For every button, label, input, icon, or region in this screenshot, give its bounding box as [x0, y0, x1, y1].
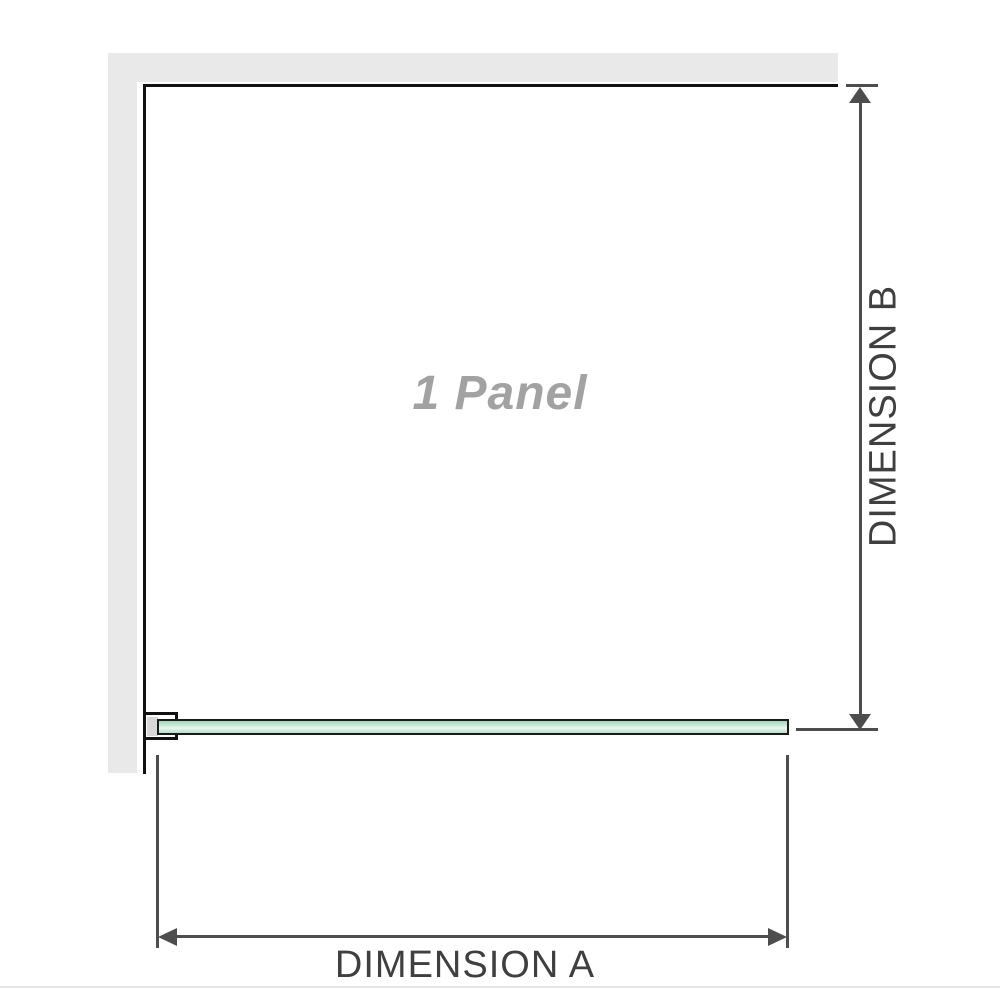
enclosure-left-line: [143, 84, 146, 774]
dimension-a-arrow-right-icon: [768, 928, 787, 946]
dimension-a-extension-left: [156, 755, 159, 948]
dimension-b-label: DIMENSION B: [863, 285, 906, 547]
dimension-b-arrow-up-icon: [849, 87, 871, 103]
bottom-separator-line: [0, 986, 1000, 988]
wall-top-band: [108, 53, 838, 82]
glass-panel: [157, 719, 789, 735]
dimension-a-label: DIMENSION A: [295, 944, 635, 987]
enclosure-top-line: [143, 84, 838, 87]
dimension-a-arrow-left-icon: [158, 928, 177, 946]
dimension-a-extension-right: [786, 755, 789, 948]
panel-dimension-diagram: 1 Panel DIMENSION B DIMENSION A: [0, 0, 1000, 1000]
dimension-a-line: [170, 935, 775, 938]
wall-left-band: [108, 53, 137, 773]
panel-count-label: 1 Panel: [330, 366, 670, 421]
dimension-b-arrow-down-icon: [849, 714, 871, 730]
